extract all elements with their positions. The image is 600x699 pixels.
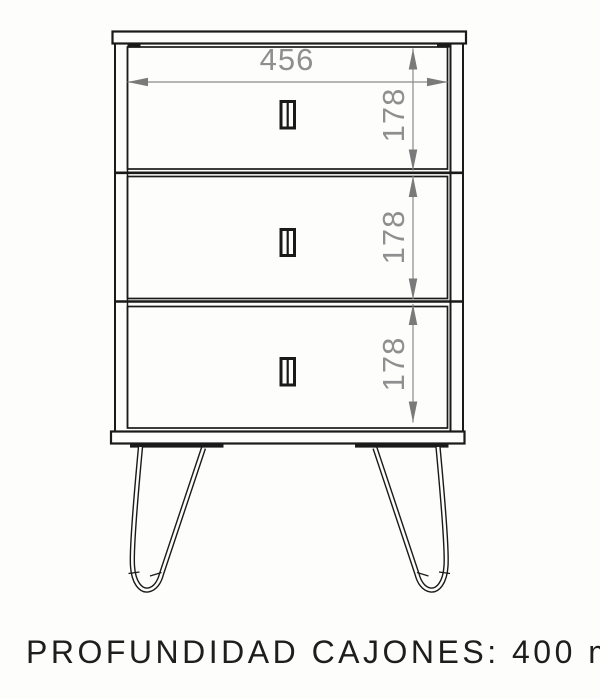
drawer-1-handle xyxy=(281,102,295,129)
leg-plate-right xyxy=(355,443,449,448)
drawer-2-height-label: 178 xyxy=(378,187,410,287)
arrow-left-icon xyxy=(128,78,149,87)
width-dimension-label: 456 xyxy=(237,44,337,75)
drawer-2-handle xyxy=(281,230,295,256)
drawer-1-height-label: 178 xyxy=(378,65,410,165)
hairpin-leg-left xyxy=(129,447,204,590)
hairpin-leg-right xyxy=(375,447,450,590)
drawer-depth-caption: PROFUNDIDAD CAJONES: 400 mm. xyxy=(26,636,600,668)
base-panel xyxy=(111,432,465,444)
legs xyxy=(129,443,451,590)
arrow-right-icon xyxy=(427,78,448,87)
drawer-3-handle xyxy=(281,359,295,386)
furniture-drawing xyxy=(0,0,600,699)
technical-drawing-page: 456 178 178 178 PROFUNDIDAD CAJONES: 400… xyxy=(0,0,600,699)
drawer-3-height-label: 178 xyxy=(378,314,410,414)
leg-plate-left xyxy=(130,443,224,448)
